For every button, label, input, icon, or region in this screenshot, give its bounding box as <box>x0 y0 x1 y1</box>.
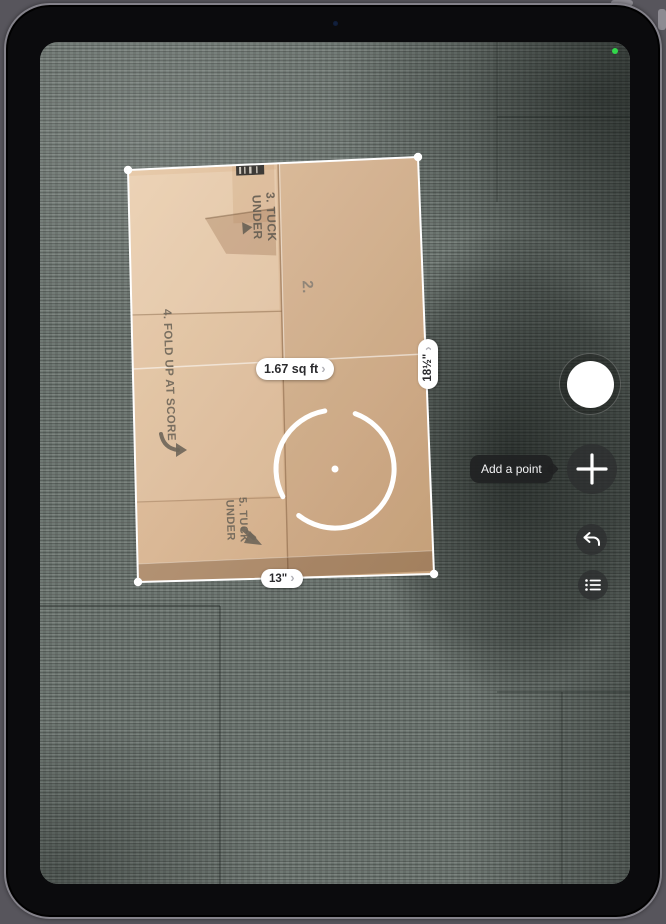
add-point-tooltip: Add a point <box>470 455 553 483</box>
undo-button[interactable] <box>576 524 607 555</box>
measurement-list-button[interactable] <box>578 570 608 600</box>
front-camera-lens <box>333 21 338 26</box>
undo-arrow-icon <box>582 530 602 550</box>
list-bullet-icon <box>583 575 603 595</box>
barcode-sticker <box>236 164 264 175</box>
add-point-button[interactable] <box>567 444 617 494</box>
box-print-step2: 2. <box>298 280 316 294</box>
area-measurement-label[interactable]: 1.67 sq ft › <box>256 358 334 380</box>
width-measurement-label[interactable]: 13" › <box>261 569 303 588</box>
box-print-step3: 3. TUCK UNDER <box>249 192 279 242</box>
height-measurement-label[interactable]: 18½" › <box>418 339 438 389</box>
chevron-icon: › <box>421 346 434 350</box>
ipad-body: 3. TUCK UNDER 2. 4. FOLD UP AT SCORE 5. … <box>4 3 662 919</box>
screenshot-stage: 3. TUCK UNDER 2. 4. FOLD UP AT SCORE 5. … <box>0 0 666 924</box>
plus-icon <box>575 452 609 486</box>
chevron-icon: › <box>321 362 325 375</box>
reticle-center-dot <box>332 466 339 473</box>
shutter-button-inner <box>567 361 614 408</box>
box-print-step5: 5. TUCK UNDER <box>222 497 250 543</box>
volume-button <box>658 9 666 30</box>
camera-viewport[interactable]: 3. TUCK UNDER 2. 4. FOLD UP AT SCORE 5. … <box>40 42 630 884</box>
shutter-button[interactable] <box>559 353 621 415</box>
camera-indicator <box>612 48 618 54</box>
chevron-icon: › <box>290 571 294 584</box>
